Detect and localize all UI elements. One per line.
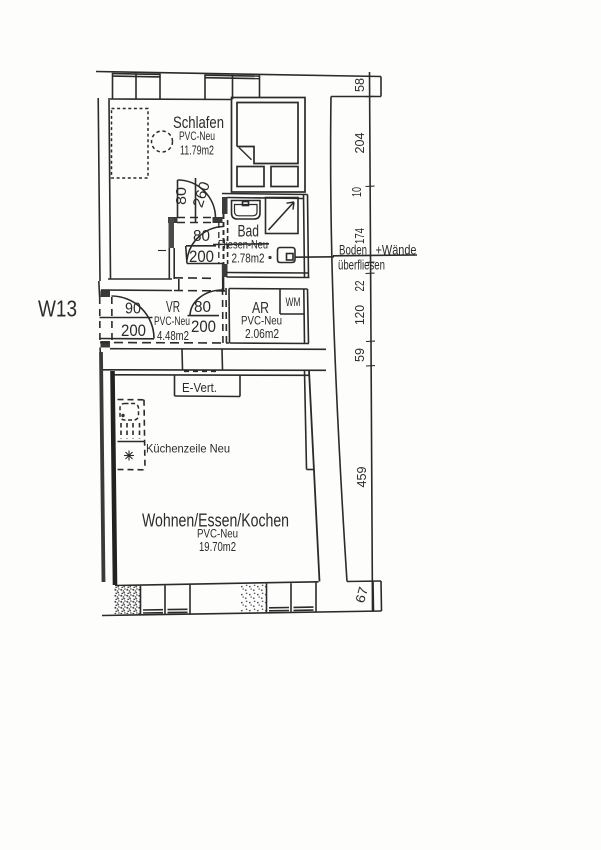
svg-text:PVC-Neu: PVC-Neu — [154, 316, 190, 328]
svg-text:Küchenzeile Neu: Küchenzeile Neu — [146, 442, 230, 456]
svg-text:11.79m2: 11.79m2 — [180, 144, 214, 158]
svg-text:WM: WM — [286, 295, 301, 309]
svg-text:80: 80 — [193, 228, 210, 245]
svg-text:204: 204 — [352, 133, 367, 154]
svg-text:2.78m2: 2.78m2 — [232, 251, 265, 266]
svg-text:2.06m2: 2.06m2 — [245, 327, 279, 341]
svg-text:58: 58 — [352, 78, 367, 92]
svg-text:80: 80 — [194, 299, 211, 316]
svg-text:W13: W13 — [38, 296, 77, 322]
svg-text:200: 200 — [121, 321, 146, 340]
svg-text:200: 200 — [189, 248, 214, 266]
svg-text:90: 90 — [125, 301, 141, 318]
svg-text:67: 67 — [352, 585, 371, 604]
svg-text:PVC-Neu: PVC-Neu — [241, 316, 282, 328]
svg-text:Bad: Bad — [238, 223, 260, 241]
svg-text:4.48m2: 4.48m2 — [157, 329, 189, 343]
svg-text:10: 10 — [349, 187, 364, 197]
svg-text:200: 200 — [191, 317, 216, 336]
svg-text:überfliesen: überfliesen — [338, 257, 385, 273]
svg-text:80: 80 — [173, 187, 190, 205]
svg-text:59: 59 — [352, 348, 367, 362]
svg-text:Wohnen/Essen/Kochen: Wohnen/Essen/Kochen — [142, 511, 289, 531]
svg-text:120: 120 — [352, 305, 367, 325]
svg-text:19.70m2: 19.70m2 — [199, 540, 236, 554]
svg-text:PVC-Neu: PVC-Neu — [197, 529, 238, 541]
svg-text:AR: AR — [252, 300, 269, 317]
svg-text:459: 459 — [354, 467, 369, 488]
svg-text:22: 22 — [352, 281, 367, 292]
svg-text:Schlafen: Schlafen — [173, 114, 224, 132]
svg-text:E-Vert.: E-Vert. — [182, 381, 217, 395]
svg-text:VR: VR — [166, 299, 180, 316]
svg-text:PVC-Neu: PVC-Neu — [179, 131, 215, 143]
